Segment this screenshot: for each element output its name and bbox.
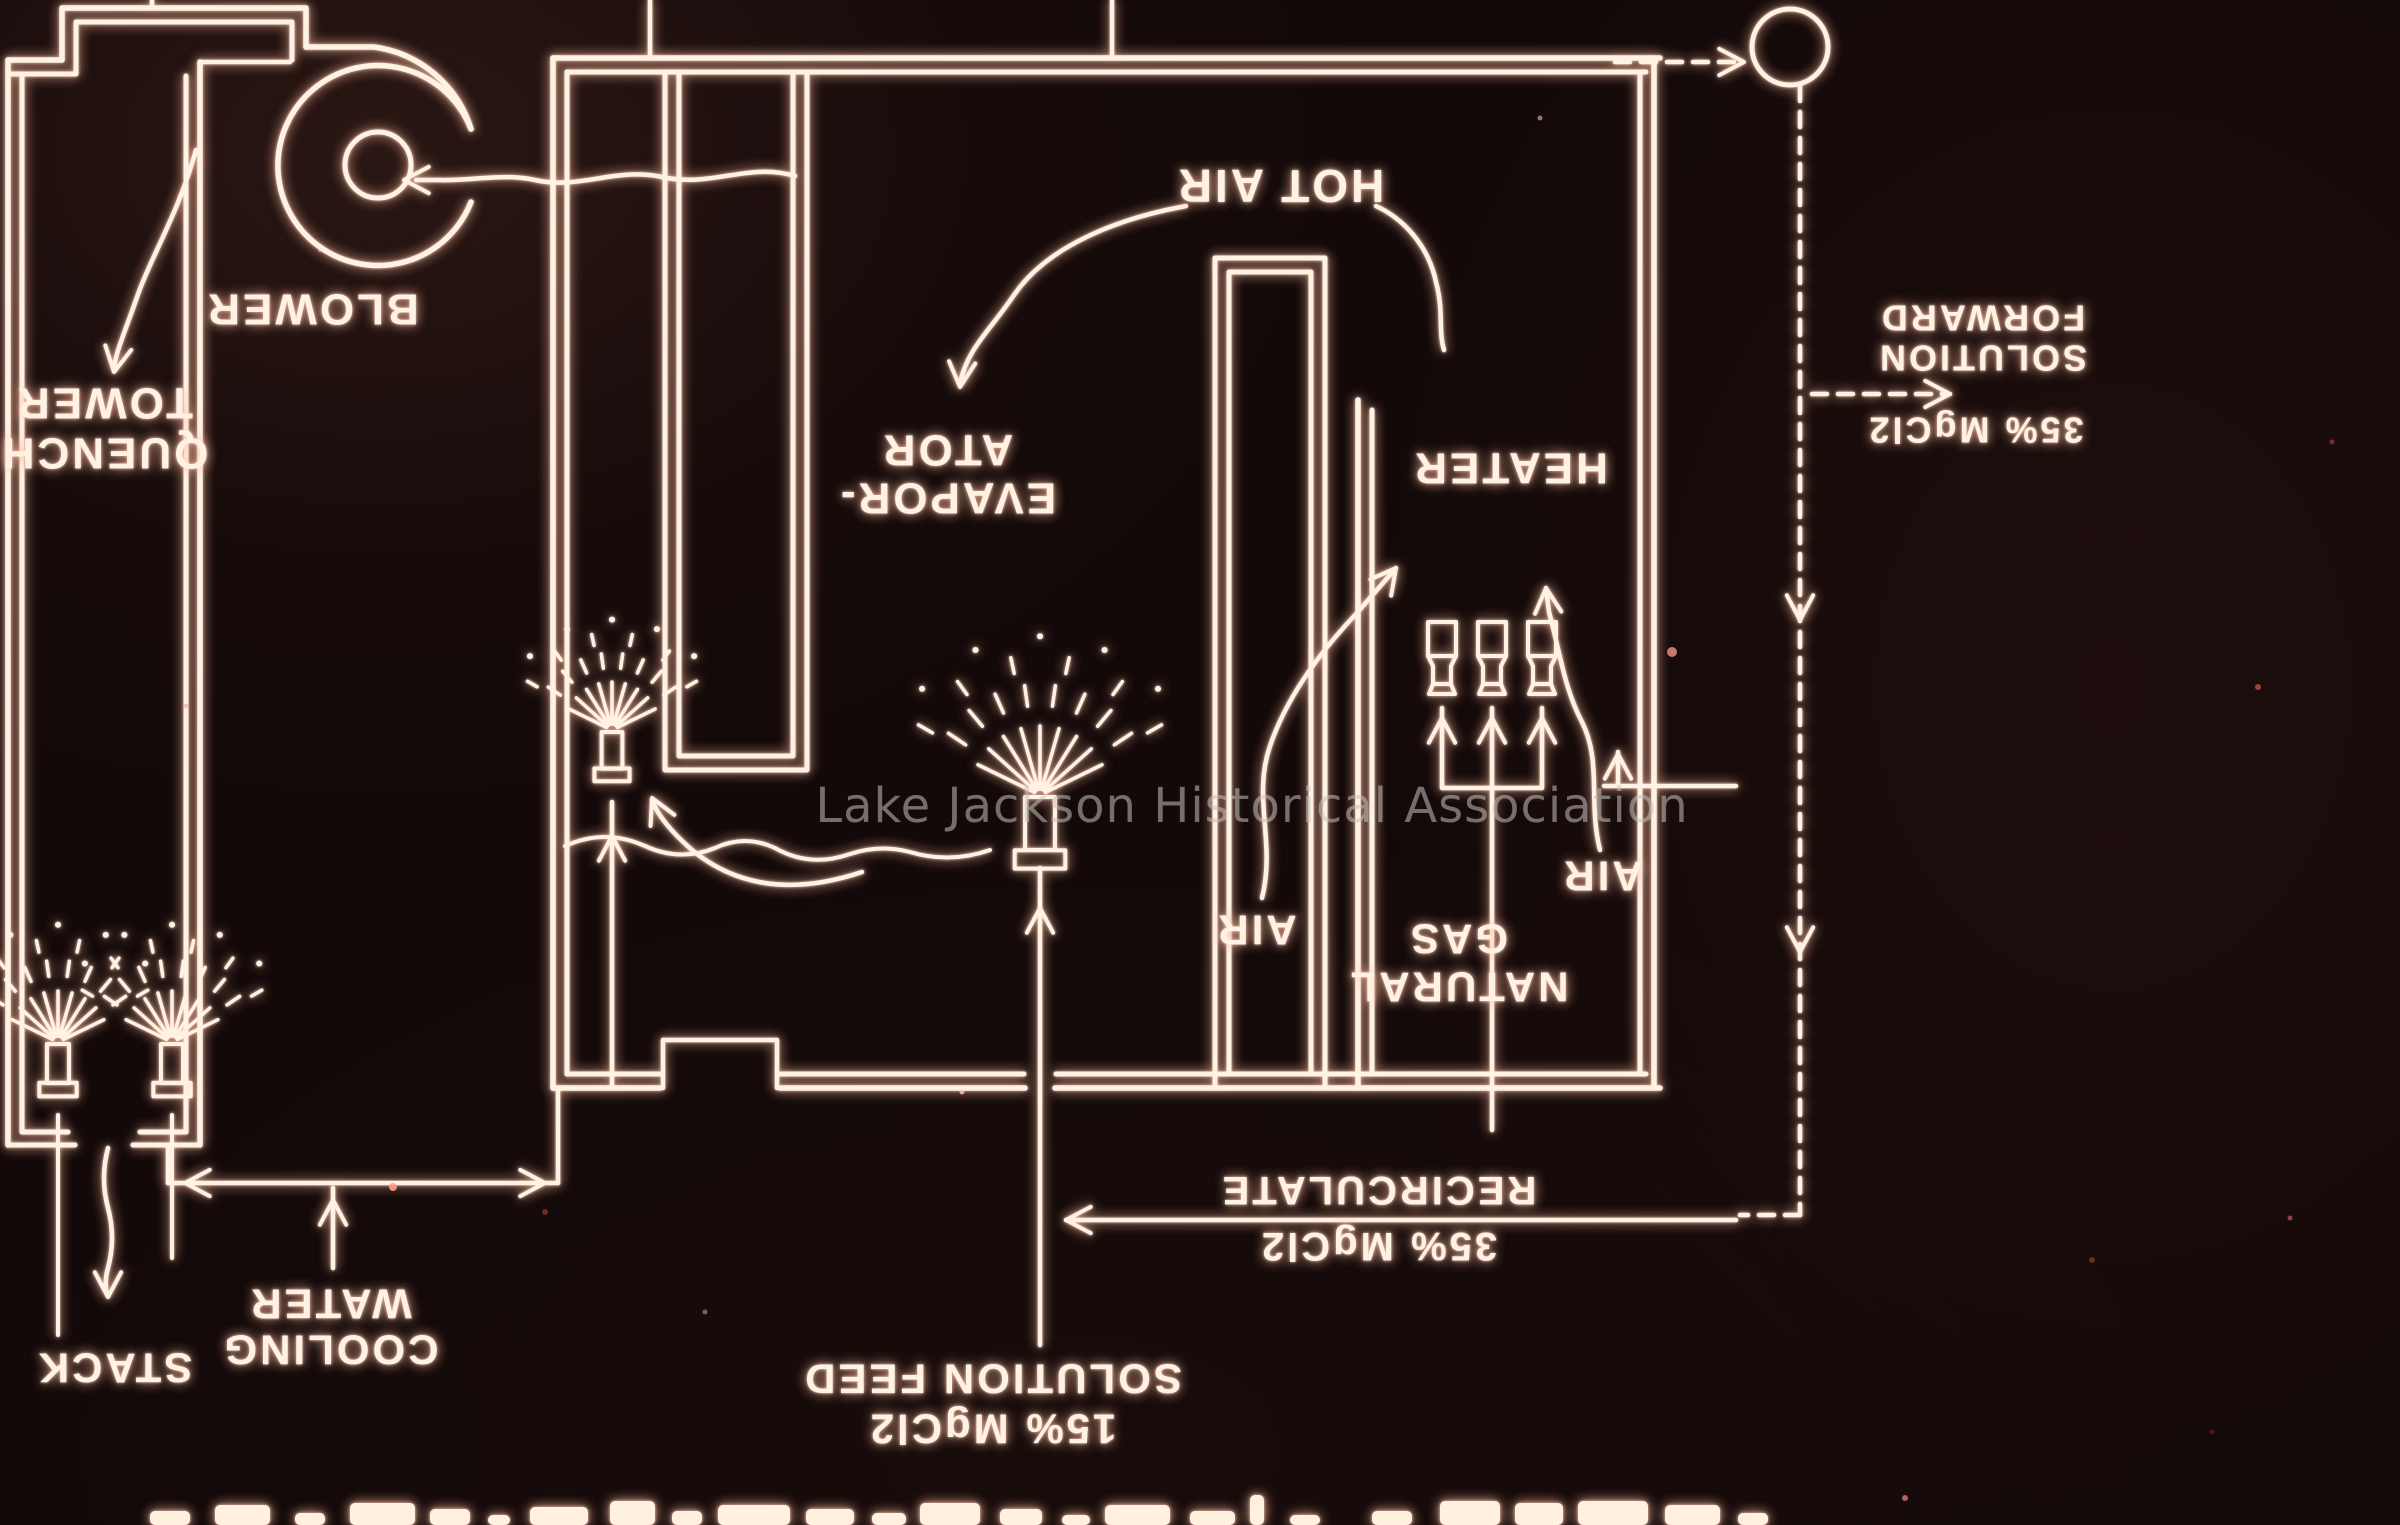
- stack-wavy-arrow: [104, 1148, 112, 1295]
- natural-gas-label-line: GAS: [1408, 916, 1508, 963]
- letter-fragment: [1440, 1501, 1500, 1525]
- hot-air-arrow-left: [960, 206, 1186, 383]
- dust-speck: [2330, 440, 2335, 445]
- air-right-label-line: AIR: [1561, 853, 1642, 900]
- letter-fragment: [1665, 1505, 1720, 1525]
- hot-air-label: HOT AIR: [1176, 160, 1384, 212]
- gas-burner: [1528, 622, 1556, 694]
- quench-tower-label-line: TOWER: [15, 379, 193, 428]
- letter-fragment: [872, 1513, 906, 1525]
- letter-fragment: [430, 1509, 470, 1525]
- evaporator-sump: [663, 1040, 777, 1088]
- dust-speck: [318, 248, 322, 252]
- quench-tower-label: QUENCHTOWER: [0, 379, 208, 478]
- solution-feed-label-line: SOLUTION FEED: [802, 1356, 1182, 1403]
- forward-concentration-label: 35% MgCl2: [1866, 410, 2083, 451]
- dust-speck: [960, 1090, 965, 1095]
- evaporator-label: EVAPOR-ATOR: [838, 426, 1056, 523]
- gas-burner: [1428, 622, 1456, 694]
- watermark-text: Lake Jackson Historical Association: [815, 778, 1688, 834]
- hot-air-arrow-right: [1376, 206, 1444, 350]
- blower-eye: [345, 132, 411, 198]
- cooling-water-label-line: COOLING: [222, 1327, 439, 1374]
- slide-photo: QUENCHTOWERBLOWERHOT AIREVAPOR-ATORHEATE…: [0, 0, 2400, 1525]
- letter-fragment: [672, 1511, 702, 1525]
- evaporator-label-line: ATOR: [881, 426, 1014, 475]
- letter-fragment: [1290, 1515, 1320, 1525]
- letter-fragment: [215, 1505, 270, 1525]
- cooling-water-label-line: WATER: [248, 1281, 412, 1328]
- spray-nozzle: [82, 925, 262, 1097]
- letter-fragment: [718, 1505, 790, 1525]
- letter-fragment: [530, 1507, 588, 1525]
- natural-gas-label: NATURALGAS: [1348, 916, 1569, 1011]
- dust-speck: [389, 1183, 397, 1191]
- letter-fragment: [350, 1503, 415, 1525]
- air-right-label: AIR: [1561, 853, 1642, 900]
- letter-fragment: [1515, 1503, 1563, 1525]
- heater-label: HEATER: [1412, 444, 1608, 493]
- dust-speck: [184, 704, 189, 709]
- natural-gas-label-line: NATURAL: [1348, 964, 1569, 1011]
- gas-burner: [1478, 622, 1506, 694]
- dashed-lines: [1615, 62, 1950, 1215]
- solution-forward-label-line: FORWARD: [1879, 298, 2085, 339]
- arrowheads: [95, 49, 1950, 1297]
- air-left-label-line: AIR: [1215, 907, 1296, 954]
- letter-fragment: [488, 1515, 510, 1525]
- liquid-level-wavy: [565, 837, 990, 860]
- cutoff-title-fragments: [150, 1495, 1768, 1525]
- dust-speck: [542, 1209, 548, 1215]
- letter-fragment: [1105, 1505, 1170, 1525]
- solution-forward-label-line: SOLUTION: [1877, 338, 2087, 379]
- air-arrow-left: [1262, 568, 1396, 898]
- evaporator-label-line: EVAPOR-: [838, 474, 1056, 523]
- dust-speck: [2288, 1216, 2293, 1221]
- blower-label: BLOWER: [205, 285, 419, 334]
- forward-concentration-label-line: 35% MgCl2: [1866, 410, 2083, 451]
- hot-air-label-line: HOT AIR: [1176, 160, 1384, 212]
- blower-scroll: [278, 47, 471, 265]
- letter-fragment: [1250, 1495, 1264, 1525]
- dust-speck: [703, 1310, 708, 1315]
- recirculate-label-line: 35% MgCl2: [1259, 1224, 1497, 1268]
- dust-speck: [1538, 116, 1543, 121]
- letter-fragment: [1738, 1513, 1768, 1525]
- evaporator-dip-column: [665, 72, 807, 770]
- letter-fragment: [1000, 1509, 1042, 1525]
- stack-label: STACK: [36, 1345, 193, 1392]
- letter-fragment: [806, 1509, 854, 1525]
- air-left-label: AIR: [1215, 907, 1296, 954]
- letter-fragment: [610, 1501, 655, 1525]
- dust-speck: [2089, 1257, 2095, 1263]
- letter-fragment: [1190, 1511, 1235, 1525]
- letter-fragment: [295, 1513, 325, 1525]
- letter-fragment: [920, 1503, 980, 1525]
- quench-tower-vessel: [8, 8, 306, 1183]
- letter-fragment: [1062, 1515, 1090, 1525]
- letter-fragment: [150, 1511, 190, 1525]
- dust-speck: [1667, 647, 1677, 657]
- dust-speck: [1902, 1495, 1908, 1501]
- cooling-water-label: COOLINGWATER: [222, 1281, 439, 1374]
- solution-feed-label: 15% MgCl2SOLUTION FEED: [802, 1356, 1182, 1453]
- letter-fragment: [1372, 1511, 1412, 1525]
- letter-fragment: [1578, 1501, 1648, 1525]
- heater-label-line: HEATER: [1412, 444, 1608, 493]
- dust-speck: [2255, 684, 2261, 690]
- dust-speck: [2210, 1430, 2215, 1435]
- solution-forward-label: SOLUTIONFORWARD: [1877, 298, 2087, 379]
- stack-label-line: STACK: [36, 1345, 193, 1392]
- quench-tower-label-line: QUENCH: [0, 429, 208, 478]
- recirculate-label-line: RECIRCULATE: [1220, 1168, 1537, 1212]
- pump-circle: [1752, 9, 1828, 85]
- blower-label-line: BLOWER: [205, 285, 419, 334]
- solution-feed-label-line: 15% MgCl2: [868, 1406, 1117, 1453]
- tower-spray-feed-lines: [58, 1115, 172, 1335]
- blower-inlet-wavy: [416, 172, 795, 183]
